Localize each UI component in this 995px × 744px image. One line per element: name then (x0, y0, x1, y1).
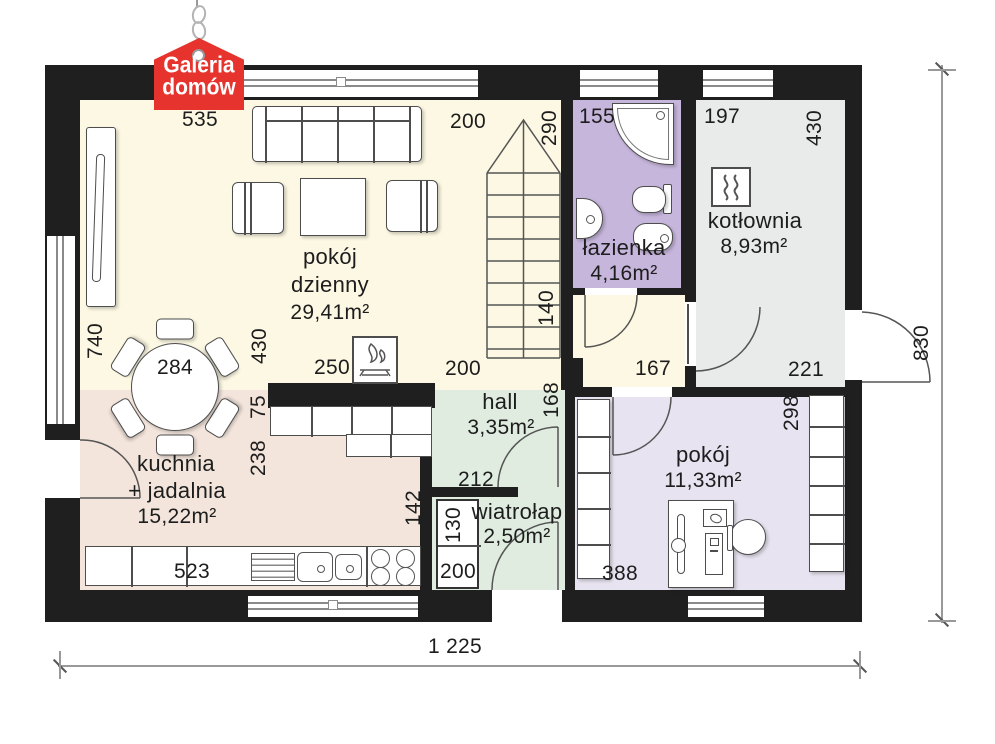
glazing-line (56, 236, 58, 424)
logo: Galeria domów (150, 0, 250, 115)
dim-200-top: 200 (450, 110, 486, 134)
boiler-exterior-door-gap (845, 310, 862, 380)
sofa-armrest (265, 107, 267, 163)
sink-basin-small (335, 554, 362, 580)
hall-area: 3,35m² (467, 416, 534, 440)
dining-chair (156, 319, 194, 340)
boiler-door (696, 307, 762, 373)
vestibule-area: 2,50m² (483, 525, 550, 549)
counter-divider (311, 407, 313, 437)
stairs-wall (561, 100, 573, 358)
desk-chair-back (727, 525, 733, 551)
stove-burner (396, 567, 415, 586)
bedroom-name: pokój (676, 442, 730, 468)
boiler-door-leaf (687, 304, 689, 364)
armchair-back-line (420, 181, 422, 233)
dim-523: 523 (174, 560, 210, 584)
dim-overall-height: 830 (910, 325, 934, 361)
glazing-line (703, 85, 773, 87)
living-area: 29,41m² (290, 301, 369, 325)
dim-197: 197 (704, 105, 740, 129)
fireplace-wall (268, 383, 435, 408)
logo-text-2: domów (162, 75, 236, 102)
armchair-back-line (250, 183, 252, 235)
bedroom-door-gap (612, 387, 672, 397)
kitchen-name-1: kuchnia (137, 451, 215, 477)
dim-155: 155 (579, 105, 615, 129)
boiler-name: kotłownia (708, 208, 802, 234)
sink-drain (317, 565, 325, 573)
glazing-line (688, 602, 764, 604)
stove-burner (371, 567, 390, 586)
desk-chair (730, 519, 766, 555)
window-mullion (328, 600, 338, 610)
stove-burner (396, 549, 415, 568)
dim-740: 740 (84, 323, 108, 359)
dim-290: 290 (538, 110, 562, 146)
coffee-table (300, 178, 366, 236)
boiler (711, 167, 751, 207)
dimension-line-bottom (58, 665, 861, 667)
dim-stub (928, 620, 956, 622)
window-living-left (47, 236, 75, 424)
wardrobe-left (577, 399, 610, 579)
dim-75: 75 (247, 395, 271, 419)
dim-200-opening: 200 (445, 357, 481, 381)
bathroom-area: 4,16m² (590, 262, 657, 286)
wardrobe-divider (810, 456, 845, 458)
armchair-right (386, 180, 438, 232)
dim-212: 212 (458, 468, 494, 492)
dim-430-boiler: 430 (803, 110, 827, 146)
pc-tower (705, 533, 723, 575)
sofa-cushion-divider (373, 107, 375, 163)
sink-basin (297, 552, 333, 582)
dim-140: 140 (535, 290, 559, 326)
counter-divider (391, 407, 393, 437)
window-kitchen-bottom (248, 596, 418, 617)
pc-detail (710, 550, 718, 552)
wardrobe-divider (438, 545, 481, 547)
wardrobe-right (809, 395, 844, 572)
wardrobe-divider (578, 472, 611, 474)
kitchen-counter-top (270, 406, 432, 436)
sink-drainer (251, 553, 295, 581)
bathroom-door (585, 295, 639, 349)
dim-130: 130 (442, 507, 466, 543)
counter-divider (390, 435, 392, 458)
dim-430-living: 430 (248, 328, 272, 364)
living-name-2: dzienny (291, 272, 369, 298)
desk (668, 500, 734, 588)
stove-burner (371, 549, 390, 568)
window-mullion (336, 77, 346, 87)
bedroom-door (613, 397, 673, 457)
window-bathroom-top (580, 70, 658, 97)
window-bedroom-bottom (688, 596, 764, 617)
dim-284: 284 (157, 356, 193, 380)
counter-divider (366, 547, 368, 587)
glazing-line (62, 236, 64, 424)
dimension-line-right (941, 65, 943, 623)
dim-overall-width: 1 225 (428, 635, 482, 659)
dim-167: 167 (635, 357, 671, 381)
kitchen-area: 15,22m² (137, 505, 216, 529)
floor-plan: 535 200 290 155 197 430 140 740 284 430 … (0, 0, 995, 744)
entrance-door-gap (492, 590, 562, 622)
living-name-1: pokój (303, 244, 357, 270)
window-boiler-top (703, 70, 773, 97)
kitchen-name-2: + jadalnia (128, 478, 226, 504)
basin-drain (586, 215, 595, 224)
sofa-armrest (409, 107, 411, 163)
dim-238: 238 (247, 440, 271, 476)
boiler-heat-icon (713, 169, 749, 205)
armchair-left (232, 182, 284, 234)
fireplace-icon (354, 338, 396, 382)
monitor-knob (671, 538, 686, 553)
dim-stub (928, 69, 956, 71)
armchair-back-line (426, 181, 428, 233)
dim-221: 221 (788, 358, 824, 382)
toilet-bowl (632, 186, 666, 213)
counter-divider (351, 407, 353, 437)
vestibule-name: wiatrołap (472, 499, 563, 525)
bedroom-area: 11,33m² (664, 469, 742, 493)
dim-298: 298 (780, 395, 804, 431)
hall-name: hall (482, 389, 517, 415)
dim-142: 142 (402, 490, 426, 526)
sofa (252, 106, 422, 162)
tv-screen (92, 154, 105, 282)
wardrobe-divider (578, 544, 611, 546)
fireplace (352, 336, 398, 384)
wardrobe-divider (578, 436, 611, 438)
mouse (709, 512, 723, 525)
dim-250: 250 (314, 356, 350, 380)
dim-200-wardrobe: 200 (440, 560, 476, 584)
wardrobe-divider (810, 426, 845, 428)
bathroom-door-gap (585, 288, 637, 295)
tv-cabinet (86, 127, 116, 307)
bathroom-name: łazienka (582, 235, 665, 261)
glazing-line (580, 79, 658, 81)
kitchen-counter-bottom (85, 546, 421, 586)
sofa-cushion-divider (337, 107, 339, 163)
glazing-line (688, 608, 764, 610)
wardrobe-divider (810, 485, 845, 487)
dim-168: 168 (540, 382, 564, 418)
stairs-wall-step (561, 358, 583, 387)
shower-drain (656, 111, 665, 120)
sofa-cushion-divider (301, 107, 303, 163)
wardrobe-divider (810, 543, 845, 545)
dim-stub (59, 651, 61, 679)
glazing-line (703, 79, 773, 81)
wardrobe-divider (810, 514, 845, 516)
mouse-pad (703, 509, 727, 527)
dim-388: 388 (602, 562, 638, 586)
dim-stub (859, 651, 861, 679)
armchair-back-line (244, 183, 246, 235)
kitchen-counter-step (346, 434, 432, 457)
pc-detail (710, 538, 719, 546)
boiler-area: 8,93m² (720, 235, 787, 259)
terrace-door-gap (45, 440, 80, 498)
wardrobe-divider (578, 508, 611, 510)
counter-divider (131, 547, 133, 587)
glazing-line (580, 85, 658, 87)
sink-drain (346, 565, 354, 573)
